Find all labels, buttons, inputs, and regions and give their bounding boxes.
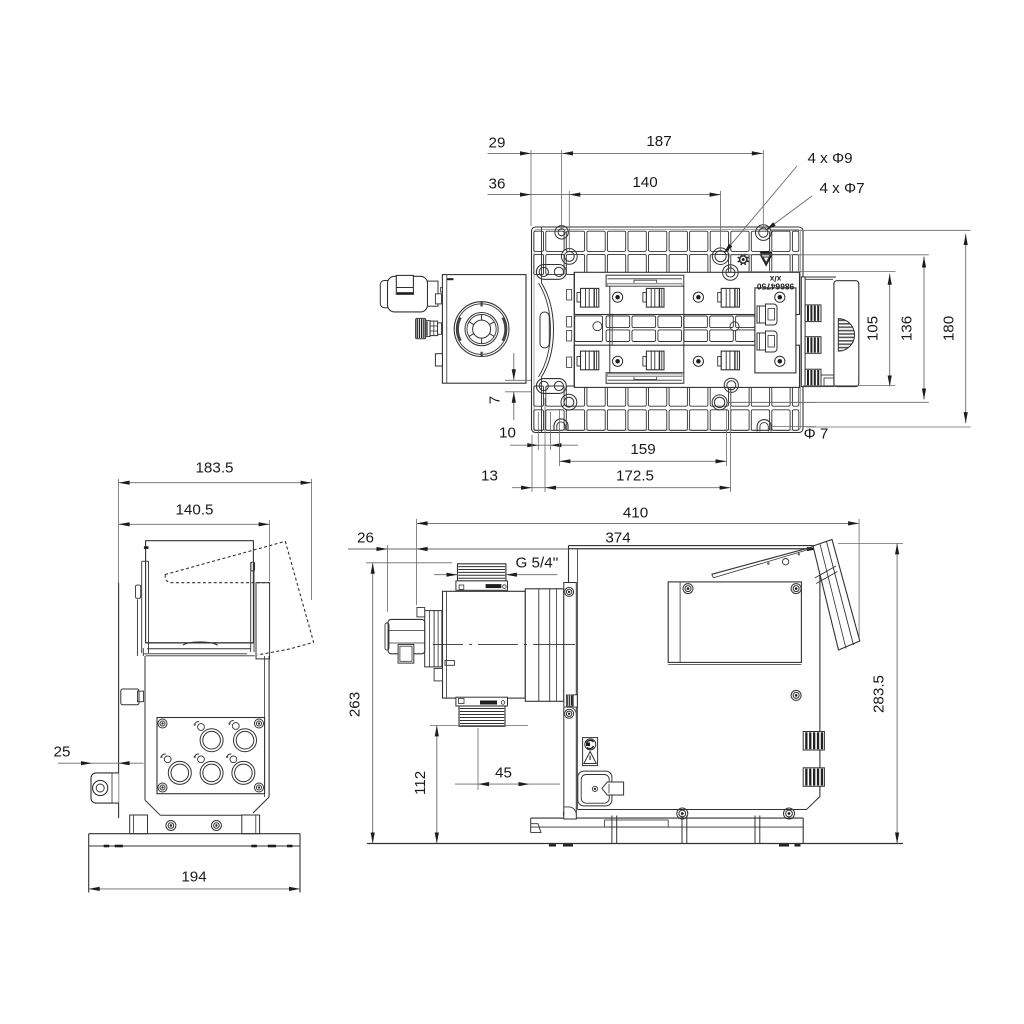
svg-text:263: 263 [347,692,364,717]
svg-text:29: 29 [489,135,506,152]
svg-text:140.5: 140.5 [175,502,213,519]
svg-text:283.5: 283.5 [871,675,888,713]
svg-text:194: 194 [181,869,206,886]
svg-text:4 x Φ7: 4 x Φ7 [819,180,864,197]
svg-text:410: 410 [623,505,648,522]
svg-text:183.5: 183.5 [195,460,233,477]
svg-text:4 x Φ9: 4 x Φ9 [807,150,852,167]
svg-text:36: 36 [489,176,506,193]
svg-text:187: 187 [646,133,671,150]
svg-text:172.5: 172.5 [616,468,654,485]
svg-text:374: 374 [605,530,630,547]
svg-text:25: 25 [54,744,71,761]
svg-text:180: 180 [941,316,958,341]
svg-text:26: 26 [357,530,374,547]
svg-text:136: 136 [899,316,916,341]
svg-text:98664750: 98664750 [757,282,795,292]
svg-text:Φ 7: Φ 7 [804,426,829,443]
svg-text:112: 112 [412,771,429,795]
svg-text:G 5/4'': G 5/4'' [516,555,559,572]
svg-text:105: 105 [865,316,882,341]
svg-text:45: 45 [495,765,512,782]
svg-text:159: 159 [630,441,655,458]
svg-text:7: 7 [487,396,504,404]
svg-text:10: 10 [499,425,516,442]
svg-text:140: 140 [632,174,657,191]
svg-text:13: 13 [481,468,498,485]
